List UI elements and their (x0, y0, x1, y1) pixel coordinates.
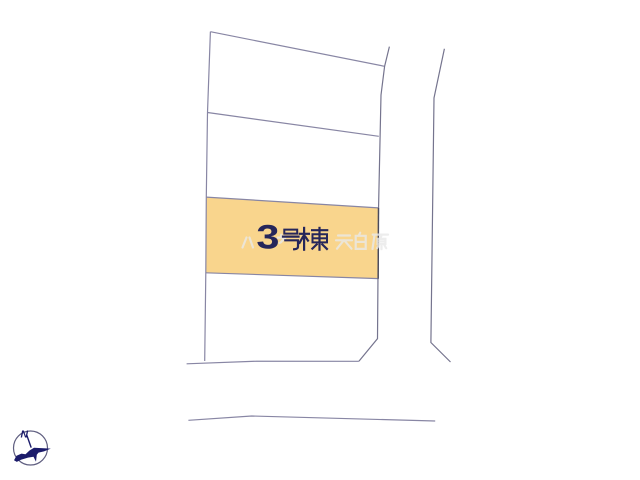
svg-text:N: N (21, 428, 29, 440)
svg-text:3: 3 (256, 219, 279, 257)
